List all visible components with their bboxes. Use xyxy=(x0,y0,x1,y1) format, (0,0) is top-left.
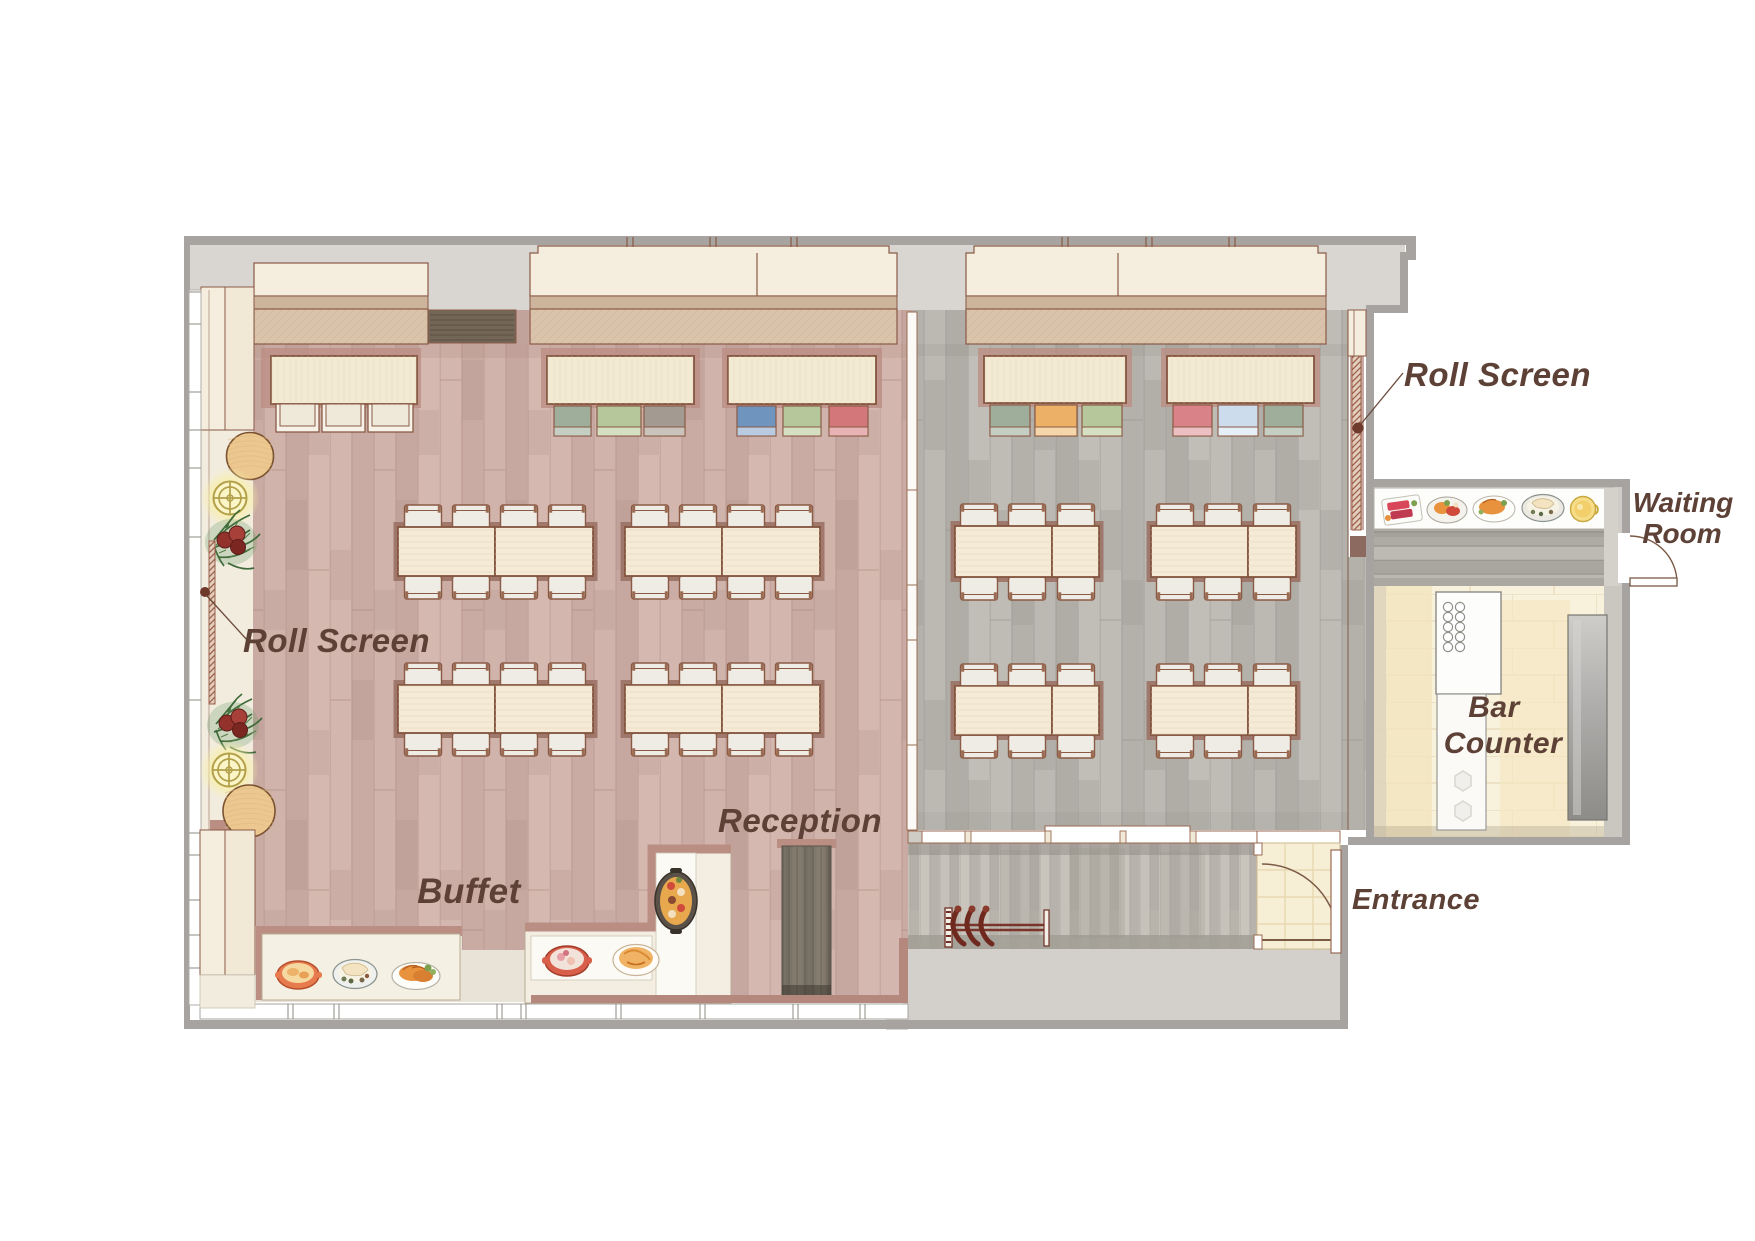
svg-text:Counter: Counter xyxy=(1444,727,1564,760)
svg-text:Roll Screen: Roll Screen xyxy=(243,622,430,659)
svg-text:Room: Room xyxy=(1642,518,1721,549)
svg-text:Reception: Reception xyxy=(718,802,882,839)
svg-text:Waiting: Waiting xyxy=(1633,487,1734,518)
svg-text:Roll Screen: Roll Screen xyxy=(1404,356,1591,393)
svg-text:Buffet: Buffet xyxy=(417,872,521,911)
svg-text:Entrance: Entrance xyxy=(1352,884,1480,916)
svg-text:Bar: Bar xyxy=(1468,691,1521,724)
